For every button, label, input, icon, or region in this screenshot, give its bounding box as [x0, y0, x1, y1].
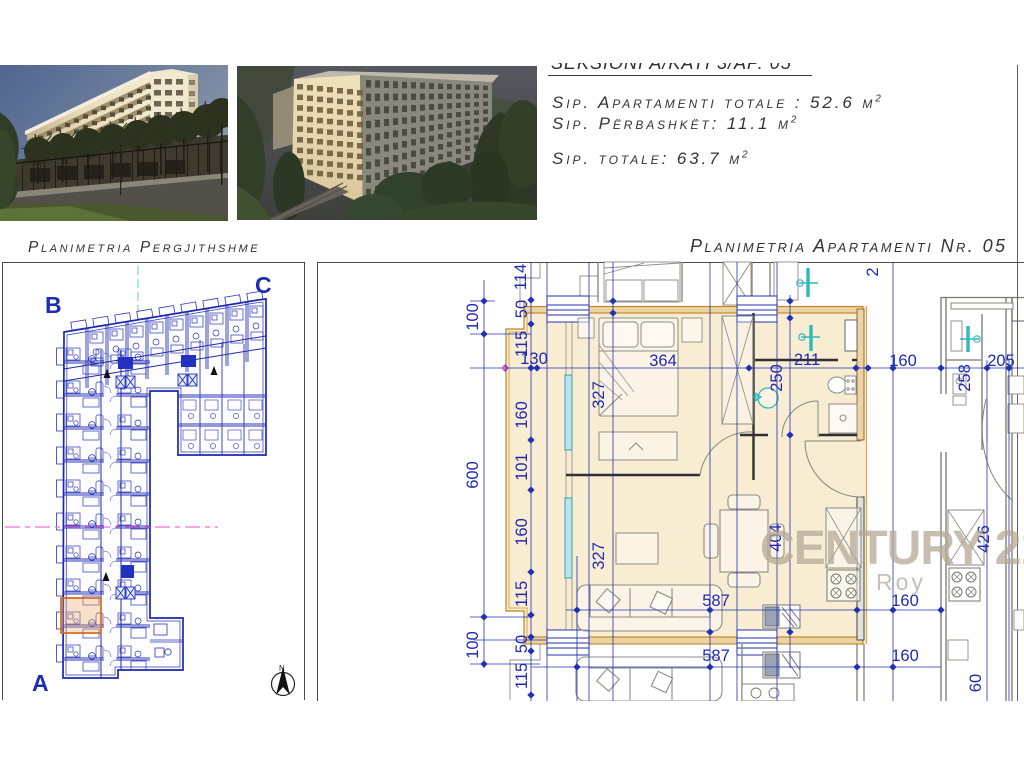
svg-text:114: 114: [512, 264, 530, 290]
svg-text:327: 327: [590, 542, 608, 570]
svg-text:327: 327: [590, 381, 608, 409]
svg-text:160: 160: [891, 647, 919, 665]
svg-text:100: 100: [464, 303, 482, 331]
svg-text:600: 600: [464, 461, 482, 489]
svg-text:115: 115: [513, 663, 531, 689]
svg-text:130: 130: [520, 350, 548, 368]
svg-text:205: 205: [987, 352, 1015, 370]
svg-text:258: 258: [956, 364, 974, 392]
svg-text:364: 364: [649, 352, 677, 370]
svg-text:Roy: Roy: [876, 569, 926, 595]
svg-text:160: 160: [513, 518, 531, 546]
svg-text:160: 160: [889, 352, 917, 370]
svg-text:100: 100: [464, 631, 482, 659]
svg-text:C: C: [255, 272, 272, 298]
svg-text:2: 2: [864, 267, 882, 276]
svg-text:115: 115: [513, 581, 531, 607]
svg-text:587: 587: [702, 592, 730, 610]
svg-text:B: B: [45, 292, 62, 318]
svg-text:101: 101: [513, 453, 531, 481]
svg-text:211: 211: [794, 351, 820, 369]
svg-text:A: A: [32, 670, 49, 696]
svg-text:587: 587: [702, 647, 730, 665]
svg-text:50: 50: [513, 300, 531, 318]
svg-text:160: 160: [513, 401, 531, 429]
svg-text:60: 60: [967, 674, 985, 692]
svg-text:250: 250: [768, 364, 786, 392]
svg-text:N: N: [279, 664, 285, 673]
svg-text:CENTURY 21: CENTURY 21: [760, 522, 1024, 575]
svg-text:50: 50: [513, 635, 531, 653]
